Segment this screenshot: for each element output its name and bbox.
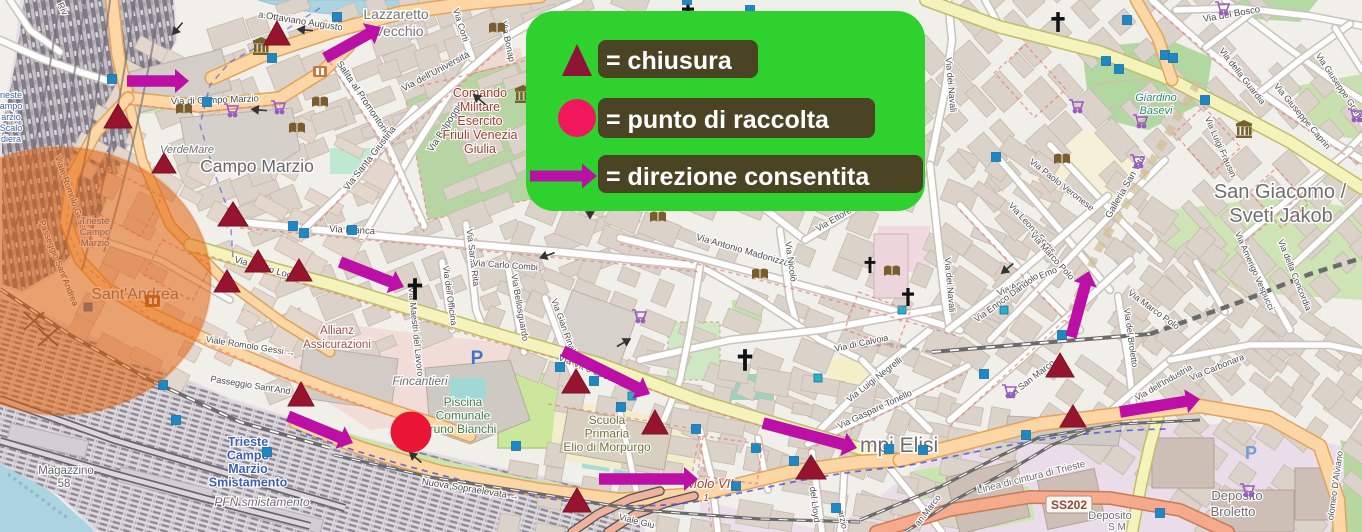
svg-text:VerdeMare: VerdeMare (160, 144, 214, 156)
svg-text:Scalo: Scalo (0, 123, 22, 133)
svg-text:Deposito: Deposito (1211, 488, 1262, 503)
svg-text:Fincantieri: Fincantieri (392, 374, 448, 388)
svg-text:Allianz: Allianz (320, 325, 354, 337)
svg-text:S M: S M (1108, 522, 1126, 532)
svg-text:Elio di Morpurgo: Elio di Morpurgo (563, 440, 651, 454)
svg-text:SS202: SS202 (1051, 498, 1087, 512)
svg-text:Friuli Venezia: Friuli Venezia (442, 128, 517, 142)
svg-text:diera: diera (1, 134, 21, 144)
svg-text:Militare: Militare (460, 100, 500, 114)
svg-text:P: P (471, 348, 484, 369)
svg-text:runo Bianchi: runo Bianchi (430, 422, 497, 436)
svg-text:= direzione consentita: = direzione consentita (606, 163, 870, 191)
svg-text:Lazzaretto: Lazzaretto (363, 6, 429, 22)
svg-text:Comunale: Comunale (436, 409, 491, 423)
svg-text:Deposito: Deposito (1088, 510, 1131, 522)
svg-text:Trieste: Trieste (228, 435, 268, 449)
svg-text:Giardino: Giardino (1135, 92, 1177, 104)
svg-text:Assicurazioni: Assicurazioni (303, 339, 371, 351)
svg-text:= chiusura: = chiusura (606, 47, 733, 75)
svg-text:Esercito: Esercito (457, 114, 502, 128)
svg-text:Basevi: Basevi (1139, 105, 1173, 117)
svg-text:P: P (1245, 443, 1257, 463)
svg-text:Smistamento: Smistamento (209, 476, 288, 490)
svg-text:arzio: arzio (1, 112, 21, 122)
svg-text:Giulia: Giulia (464, 142, 496, 156)
svg-text:Scuola: Scuola (589, 413, 626, 427)
svg-text:Marzio: Marzio (228, 462, 268, 476)
svg-text:58: 58 (58, 478, 71, 490)
svg-text:Primaria: Primaria (585, 427, 630, 441)
svg-text:Piscina: Piscina (444, 395, 483, 409)
svg-text:rieste: rieste (0, 90, 22, 100)
svg-text:Broletto: Broletto (1211, 504, 1256, 519)
svg-text:= punto di raccolta: = punto di raccolta (606, 106, 830, 134)
svg-text:Sveti Jakob: Sveti Jakob (1229, 205, 1332, 227)
svg-text:Vecchio: Vecchio (374, 23, 423, 39)
svg-text:ampo: ampo (0, 101, 22, 111)
svg-text:Magazzino: Magazzino (38, 465, 94, 477)
svg-text:San Giacomo /: San Giacomo / (1214, 181, 1347, 203)
svg-text:Campo Marzio: Campo Marzio (200, 156, 314, 176)
svg-text:PFN smistamento: PFN smistamento (214, 495, 310, 509)
svg-text:1: 1 (703, 493, 709, 504)
